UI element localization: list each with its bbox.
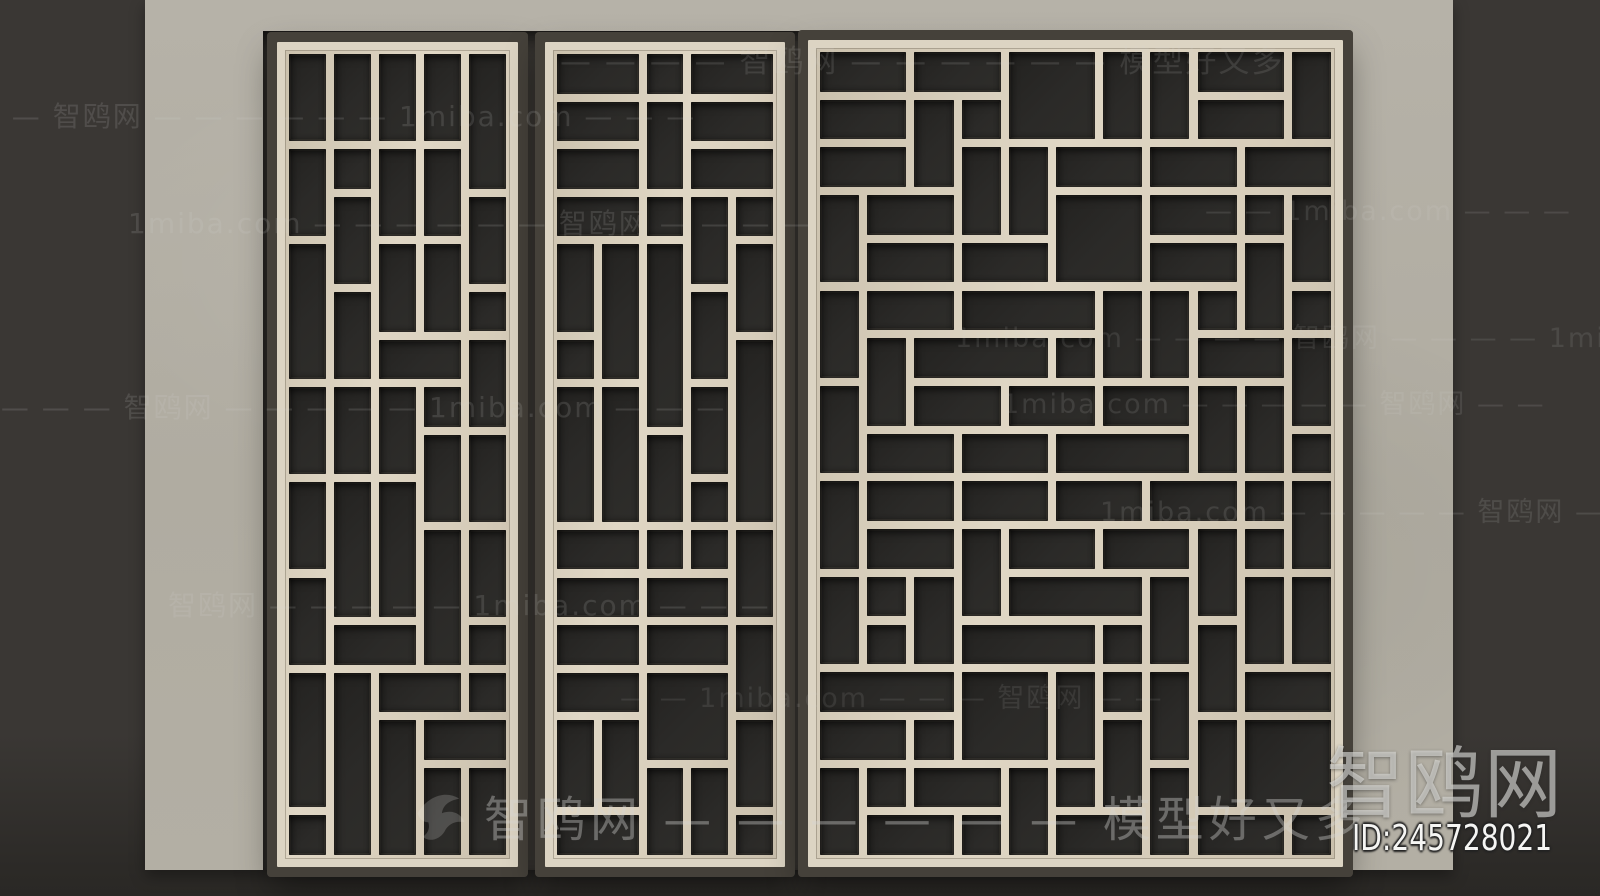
lattice-cell xyxy=(820,147,906,187)
lattice-cell xyxy=(1245,481,1284,521)
lattice-cell xyxy=(691,54,773,94)
lattice-cell xyxy=(1150,672,1189,759)
lattice-cell xyxy=(557,54,639,94)
lattice-cell xyxy=(424,435,461,522)
lattice-cell xyxy=(1245,243,1284,330)
lattice-cell xyxy=(962,529,1001,616)
lattice-panel-1 xyxy=(277,42,518,867)
lattice-cell xyxy=(867,481,953,521)
lattice-cell xyxy=(962,481,1048,521)
lattice-cell xyxy=(820,481,859,568)
lattice-cell xyxy=(1198,529,1237,616)
lattice-cell xyxy=(557,815,639,855)
lattice-cell xyxy=(736,530,773,617)
lattice-cell xyxy=(691,149,773,189)
lattice-cell xyxy=(424,387,461,427)
lattice-cell xyxy=(691,482,728,522)
lattice-cell xyxy=(914,768,1000,808)
lattice-cell xyxy=(1103,291,1142,378)
lattice-cell xyxy=(1009,768,1048,855)
lattice-cell xyxy=(820,577,859,664)
lattice-cell xyxy=(557,387,594,522)
lattice-cell xyxy=(1292,195,1331,282)
lattice-cell xyxy=(1056,815,1142,855)
lattice-cell xyxy=(1245,672,1331,712)
lattice-cell xyxy=(289,149,326,236)
lattice-cell xyxy=(557,340,594,380)
lattice-cell xyxy=(736,625,773,712)
lattice-cell xyxy=(424,720,506,760)
lattice-cell xyxy=(424,54,461,141)
lattice-cell xyxy=(1198,720,1237,807)
lattice-cell xyxy=(691,197,728,284)
lattice-cell xyxy=(1245,577,1284,664)
lattice-cell xyxy=(557,720,594,807)
lattice-cell xyxy=(962,147,1001,234)
lattice-cell xyxy=(647,54,684,94)
lattice-cell xyxy=(736,720,773,807)
lattice-cell xyxy=(289,815,326,855)
lattice-cell xyxy=(1056,672,1095,759)
lattice-cell xyxy=(469,530,506,617)
lattice-cell xyxy=(1292,481,1331,568)
lattice-grid xyxy=(816,48,1335,859)
lattice-cell xyxy=(379,244,416,331)
lattice-cell xyxy=(469,673,506,713)
lattice-cell xyxy=(1103,529,1189,569)
lattice-cell xyxy=(962,672,1048,759)
lattice-cell xyxy=(647,197,684,237)
lattice-cell xyxy=(1009,577,1143,617)
lattice-cell xyxy=(289,482,326,569)
lattice-cell xyxy=(602,244,639,379)
lattice-cell xyxy=(379,54,416,141)
lattice-cell xyxy=(469,625,506,665)
lattice-cell xyxy=(1292,291,1331,331)
lattice-cell xyxy=(1198,386,1237,473)
lattice-cell xyxy=(289,578,326,665)
lattice-cell xyxy=(1198,815,1284,855)
lattice-cell xyxy=(289,244,326,379)
lattice-cell xyxy=(334,625,416,665)
lattice-cell xyxy=(1292,338,1331,425)
lattice-cell xyxy=(334,292,371,379)
lattice-cell xyxy=(469,292,506,332)
lattice-cell xyxy=(379,340,461,380)
lattice-cell xyxy=(557,149,639,189)
lattice-cell xyxy=(602,720,639,807)
lattice-cell xyxy=(1056,434,1190,474)
lattice-cell xyxy=(1150,768,1189,855)
lattice-cell xyxy=(289,387,326,474)
lattice-cell xyxy=(1150,291,1189,378)
lattice-cell xyxy=(962,815,1001,855)
lattice-cell xyxy=(914,386,1000,426)
lattice-cell xyxy=(914,52,1000,92)
lattice-cell xyxy=(557,197,639,237)
lattice-cell xyxy=(1150,195,1236,235)
lattice-cell xyxy=(691,768,728,855)
lattice-cell xyxy=(557,625,639,665)
lattice-cell xyxy=(379,720,416,855)
lattice-cell xyxy=(1103,672,1142,712)
lattice-cell xyxy=(867,529,953,569)
lattice-cell xyxy=(469,768,506,855)
lattice-cell xyxy=(1009,147,1048,234)
lattice-cell xyxy=(334,673,371,855)
lattice-cell xyxy=(914,720,953,760)
lattice-cell xyxy=(867,195,953,235)
lattice-cell xyxy=(469,340,506,427)
lattice-cell xyxy=(334,482,371,617)
lattice-cell xyxy=(962,100,1001,140)
lattice-cell xyxy=(1103,720,1142,807)
lattice-cell xyxy=(867,434,953,474)
lattice-cell xyxy=(334,149,371,189)
lattice-cell xyxy=(867,577,906,617)
lattice-cell xyxy=(736,197,773,237)
lattice-cell xyxy=(557,530,639,570)
lattice-cell xyxy=(424,768,461,855)
lattice-cell xyxy=(820,291,859,378)
lattice-cell xyxy=(1009,52,1095,139)
lattice-cell xyxy=(1056,768,1095,808)
lattice-cell xyxy=(1056,338,1095,378)
lattice-grid xyxy=(285,50,510,859)
lattice-cell xyxy=(867,291,953,331)
lattice-cell xyxy=(424,530,461,665)
lattice-cell xyxy=(334,197,371,284)
lattice-cell xyxy=(962,243,1048,283)
model-id-text: ID:245728021 xyxy=(1352,818,1552,859)
lattice-cell xyxy=(691,292,728,379)
lattice-cell xyxy=(962,291,1096,331)
lattice-cell xyxy=(647,435,684,522)
lattice-cell xyxy=(914,100,953,187)
lattice-cell xyxy=(867,338,906,425)
lattice-cell xyxy=(1198,338,1284,378)
lattice-cell xyxy=(1056,195,1142,282)
lattice-cell xyxy=(647,578,729,618)
lattice-cell xyxy=(602,387,639,522)
lattice-cell xyxy=(1150,481,1236,521)
lattice-cell xyxy=(867,625,906,665)
lattice-cell xyxy=(469,197,506,284)
lattice-cell xyxy=(820,720,906,760)
lattice-cell xyxy=(289,54,326,141)
lattice-cell xyxy=(469,435,506,522)
lattice-cell xyxy=(820,195,859,282)
lattice-cell xyxy=(557,673,639,713)
lattice-cell xyxy=(820,386,859,473)
lattice-cell xyxy=(1103,386,1189,426)
lattice-cell xyxy=(557,578,639,618)
lattice-cell xyxy=(1198,52,1284,92)
lattice-panel-3 xyxy=(808,40,1343,867)
lattice-cell xyxy=(379,387,416,474)
lattice-cell xyxy=(1009,386,1095,426)
lattice-cell xyxy=(1245,147,1331,187)
lattice-cell xyxy=(379,149,416,236)
lattice-cell xyxy=(334,387,371,474)
lattice-cell xyxy=(914,338,1048,378)
lattice-cell xyxy=(691,102,773,142)
lattice-cell xyxy=(867,768,906,808)
lattice-cell xyxy=(736,815,773,855)
lattice-cell xyxy=(334,54,371,141)
lattice-cell xyxy=(647,768,684,855)
lattice-cell xyxy=(1150,577,1189,664)
lattice-cell xyxy=(557,244,594,331)
lattice-cell xyxy=(557,102,639,142)
lattice-cell xyxy=(379,673,461,713)
lattice-cell xyxy=(867,243,953,283)
lattice-cell xyxy=(289,673,326,808)
lattice-panel-2 xyxy=(545,42,785,867)
lattice-cell xyxy=(1103,625,1142,665)
lattice-cell xyxy=(820,672,954,712)
lattice-cell xyxy=(1198,100,1284,140)
lattice-cell xyxy=(691,530,728,570)
render-canvas: — — — — 智鸥网 — — — — — — 模型好又多— — — 智鸥网 —… xyxy=(0,0,1600,896)
lattice-cell xyxy=(647,530,684,570)
lattice-cell xyxy=(424,149,461,236)
lattice-cell xyxy=(962,625,1096,665)
lattice-cell xyxy=(1292,52,1331,139)
lattice-cell xyxy=(736,340,773,522)
lattice-cell xyxy=(691,387,728,474)
lattice-cell xyxy=(1150,52,1189,139)
lattice-cell xyxy=(867,815,953,855)
lattice-cell xyxy=(1245,720,1331,807)
lattice-cell xyxy=(1245,386,1284,473)
lattice-cell xyxy=(379,482,416,617)
lattice-cell xyxy=(1198,291,1237,331)
lattice-cell xyxy=(1150,243,1236,283)
lattice-cell xyxy=(820,100,906,140)
lattice-cell xyxy=(647,625,729,665)
lattice-cell xyxy=(424,244,461,331)
lattice-cell xyxy=(820,52,906,92)
lattice-cell xyxy=(736,244,773,331)
lattice-cell xyxy=(914,577,953,664)
lattice-cell xyxy=(1245,529,1284,569)
lattice-cell xyxy=(1103,52,1142,139)
lattice-cell xyxy=(469,54,506,189)
lattice-cell xyxy=(647,244,684,426)
lattice-cell xyxy=(1056,147,1142,187)
lattice-cell xyxy=(647,673,729,760)
lattice-cell xyxy=(1056,481,1142,521)
lattice-cell xyxy=(1009,529,1095,569)
lattice-grid xyxy=(553,50,777,859)
lattice-cell xyxy=(1292,577,1331,664)
lattice-cell xyxy=(1292,434,1331,474)
lattice-cell xyxy=(1198,625,1237,712)
lattice-cell xyxy=(1245,195,1284,235)
lattice-cell xyxy=(1150,147,1236,187)
lattice-cell xyxy=(647,102,684,189)
lattice-cell xyxy=(820,768,859,855)
lattice-cell xyxy=(962,434,1048,474)
